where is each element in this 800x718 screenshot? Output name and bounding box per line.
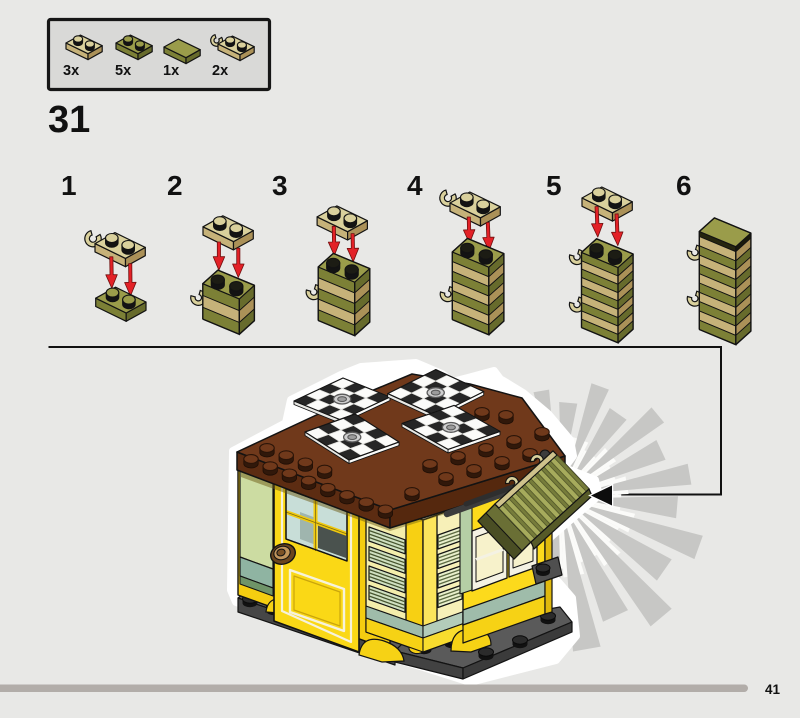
svg-text:3x: 3x [63, 63, 79, 79]
svg-text:2: 2 [167, 170, 183, 201]
svg-text:4: 4 [407, 170, 423, 201]
svg-text:5x: 5x [115, 63, 131, 79]
svg-text:1: 1 [61, 170, 77, 201]
svg-text:1x: 1x [163, 63, 179, 79]
svg-text:41: 41 [765, 682, 781, 697]
svg-text:5: 5 [546, 170, 562, 201]
svg-text:3: 3 [272, 170, 288, 201]
svg-text:6: 6 [676, 170, 692, 201]
svg-text:31: 31 [48, 99, 90, 141]
svg-text:2x: 2x [212, 63, 228, 79]
